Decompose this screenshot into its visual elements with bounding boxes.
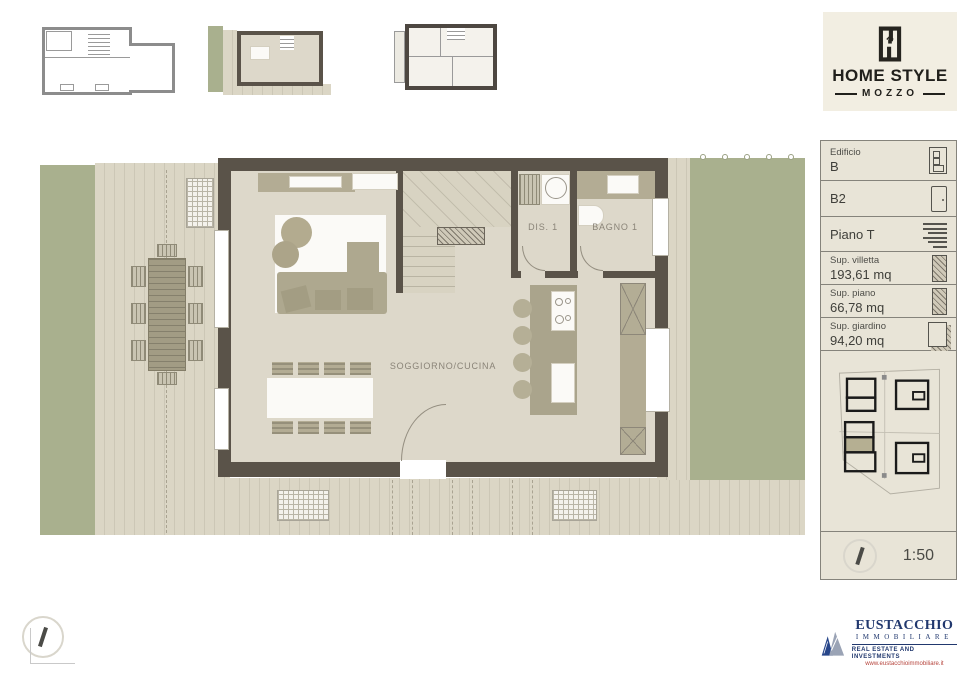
entrance-door-right bbox=[652, 198, 669, 256]
deck-grate bbox=[186, 178, 214, 228]
agency-text-block: EUSTACCHIO IMMOBILIARE REAL ESTATE AND I… bbox=[852, 618, 957, 668]
dining-chair bbox=[272, 421, 293, 434]
garden-right bbox=[690, 158, 805, 480]
thumb2-grass bbox=[208, 26, 223, 92]
thumb1-partition bbox=[45, 57, 130, 58]
utility-shelves bbox=[519, 174, 540, 205]
tall-unit bbox=[620, 427, 646, 455]
rooms-bottom-wall bbox=[603, 271, 655, 278]
stairs-upper bbox=[403, 171, 511, 227]
agency-type: IMMOBILIARE bbox=[856, 634, 953, 642]
thumb3-partition-v2 bbox=[440, 28, 441, 56]
tall-unit bbox=[620, 283, 646, 335]
burner bbox=[565, 315, 571, 321]
thumb3-partition-h bbox=[409, 56, 493, 57]
burner bbox=[555, 298, 563, 306]
thumb1-door-mark bbox=[95, 84, 109, 91]
dining-table bbox=[266, 377, 374, 419]
cooktop bbox=[551, 291, 575, 331]
floor-area-label: Sup. piano bbox=[830, 288, 884, 300]
deck-dashed-line bbox=[412, 480, 413, 535]
row-villa-area: Sup. villetta 193,61 mq bbox=[821, 252, 956, 285]
deck-dashed-line bbox=[452, 480, 453, 535]
dining-chair bbox=[298, 421, 319, 434]
door-opening-bottom bbox=[400, 460, 446, 479]
outdoor-chair bbox=[131, 266, 146, 287]
garden-area-label: Sup. giardino bbox=[830, 321, 886, 333]
garden-area-value: 94,20 mq bbox=[830, 333, 886, 348]
building-label: Edificio bbox=[830, 147, 861, 159]
garden-area-icon bbox=[928, 322, 947, 347]
row-floor: Piano T bbox=[821, 217, 956, 252]
utility-room-label: DIS. 1 bbox=[512, 222, 574, 232]
building-value: B bbox=[830, 159, 861, 174]
door-icon bbox=[931, 186, 947, 212]
window-right bbox=[645, 328, 670, 412]
site-key-plan-drawing bbox=[830, 359, 947, 524]
sofa-cushion bbox=[347, 288, 373, 310]
floor-lines-icon bbox=[923, 221, 947, 248]
sheet-corner-line-v bbox=[30, 628, 31, 664]
site-key-plan bbox=[821, 351, 956, 532]
outdoor-chair bbox=[157, 244, 177, 257]
thumb3-stairs bbox=[447, 28, 465, 40]
brand-sub-row: MOZZO bbox=[835, 88, 945, 99]
rooms-bottom-wall bbox=[511, 271, 521, 278]
garden-left bbox=[40, 165, 95, 535]
sideboard-top bbox=[289, 176, 342, 188]
window-left-2 bbox=[214, 388, 229, 450]
agency-logo: EUSTACCHIO IMMOBILIARE REAL ESTATE AND I… bbox=[818, 618, 957, 668]
agency-website: www.eustacchioimmobiliare.it bbox=[865, 661, 943, 668]
dining-chair bbox=[324, 421, 345, 434]
thumb2-stairs bbox=[280, 36, 294, 50]
hatched-area-icon bbox=[932, 255, 947, 282]
washing-machine-drum bbox=[545, 177, 567, 199]
utility-bath-wall bbox=[570, 171, 577, 271]
villa-area-value: 193,61 mq bbox=[830, 267, 891, 282]
sofa-cushion bbox=[315, 290, 341, 310]
sofa-chaise bbox=[347, 242, 379, 274]
outdoor-table bbox=[148, 258, 186, 371]
fence-post bbox=[722, 154, 728, 160]
hatched-area-icon bbox=[932, 288, 947, 315]
deck-dashed-line bbox=[512, 480, 513, 535]
villa-area-label: Sup. villetta bbox=[830, 255, 891, 267]
thumb3-balcony bbox=[394, 31, 405, 83]
scale-row: 1:50 bbox=[821, 532, 956, 579]
scale-value: 1:50 bbox=[903, 547, 934, 565]
floor-value: Piano T bbox=[830, 227, 875, 242]
row-floor-area: Sup. piano 66,78 mq bbox=[821, 285, 956, 318]
dining-chair bbox=[350, 421, 371, 434]
deck-grate bbox=[552, 490, 597, 521]
brand-dash bbox=[923, 93, 945, 95]
brand-card: HOME STYLE MOZZO bbox=[823, 12, 957, 111]
fence-post bbox=[766, 154, 772, 160]
sheet-corner-line-h bbox=[30, 663, 75, 664]
home-style-logo-icon bbox=[870, 24, 910, 64]
pouf bbox=[272, 241, 299, 268]
outdoor-chair bbox=[188, 303, 203, 324]
row-unit: B2 bbox=[821, 181, 956, 217]
dining-chair bbox=[298, 362, 319, 375]
agency-building-icon bbox=[818, 626, 848, 660]
living-kitchen-label: SOGGIORNO/CUCINA bbox=[378, 361, 508, 371]
unit-value: B2 bbox=[830, 191, 846, 206]
fence-post bbox=[788, 154, 794, 160]
row-building: Edificio B bbox=[821, 141, 956, 181]
north-compass-icon bbox=[843, 539, 877, 573]
bar-stool bbox=[513, 380, 532, 399]
thumb2-rug bbox=[250, 46, 270, 60]
thumb1-door-mark bbox=[60, 84, 74, 91]
bar-stool bbox=[513, 299, 532, 318]
floor-area-value: 66,78 mq bbox=[830, 300, 884, 315]
agency-name: EUSTACCHIO bbox=[855, 618, 953, 633]
dining-chair bbox=[324, 362, 345, 375]
deck-dashed-line bbox=[392, 480, 393, 535]
burner bbox=[555, 315, 564, 324]
outdoor-chair bbox=[157, 372, 177, 385]
thumb1-garage bbox=[129, 43, 175, 93]
thumb2-deck-left bbox=[223, 30, 237, 88]
brand-dash bbox=[835, 93, 857, 95]
rooms-bottom-wall bbox=[545, 271, 578, 278]
dining-chair bbox=[272, 362, 293, 375]
fence-post bbox=[700, 154, 706, 160]
kitchen-sink bbox=[551, 363, 575, 403]
outdoor-chair bbox=[131, 340, 146, 361]
bathroom-label: BAGNO 1 bbox=[577, 222, 653, 232]
agency-tagline: REAL ESTATE AND INVESTMENTS bbox=[852, 647, 957, 660]
burner bbox=[565, 298, 571, 304]
window-left-1 bbox=[214, 230, 229, 328]
thumb1-stairs bbox=[88, 31, 110, 57]
brand-name: HOME STYLE bbox=[832, 66, 948, 86]
outdoor-chair bbox=[188, 266, 203, 287]
outdoor-chair bbox=[131, 303, 146, 324]
utility-wall-left bbox=[511, 171, 518, 271]
plan-sheet: HOME STYLE MOZZO bbox=[0, 0, 960, 679]
bar-stool bbox=[513, 326, 532, 345]
tall-unit-plain bbox=[620, 335, 646, 427]
row-garden-area: Sup. giardino 94,20 mq bbox=[821, 318, 956, 351]
thumb3-partition-v bbox=[452, 56, 453, 86]
stairs-hatch-landing bbox=[437, 227, 485, 245]
bar-stool bbox=[513, 353, 532, 372]
info-panel: Edificio B B2 Piano T Sup. ville bbox=[820, 140, 957, 580]
agency-rule bbox=[852, 644, 957, 645]
outdoor-chair bbox=[188, 340, 203, 361]
dining-chair bbox=[350, 362, 371, 375]
tv-cabinet bbox=[352, 173, 398, 190]
thumb1-room bbox=[46, 31, 72, 51]
deck-dashed-line bbox=[472, 480, 473, 535]
north-compass-icon bbox=[22, 616, 64, 658]
brand-sub: MOZZO bbox=[862, 88, 918, 99]
deck-dashed-line bbox=[532, 480, 533, 535]
building-icon bbox=[929, 147, 947, 174]
fence-post bbox=[744, 154, 750, 160]
deck-grate bbox=[277, 490, 329, 521]
bath-sink bbox=[607, 175, 639, 194]
